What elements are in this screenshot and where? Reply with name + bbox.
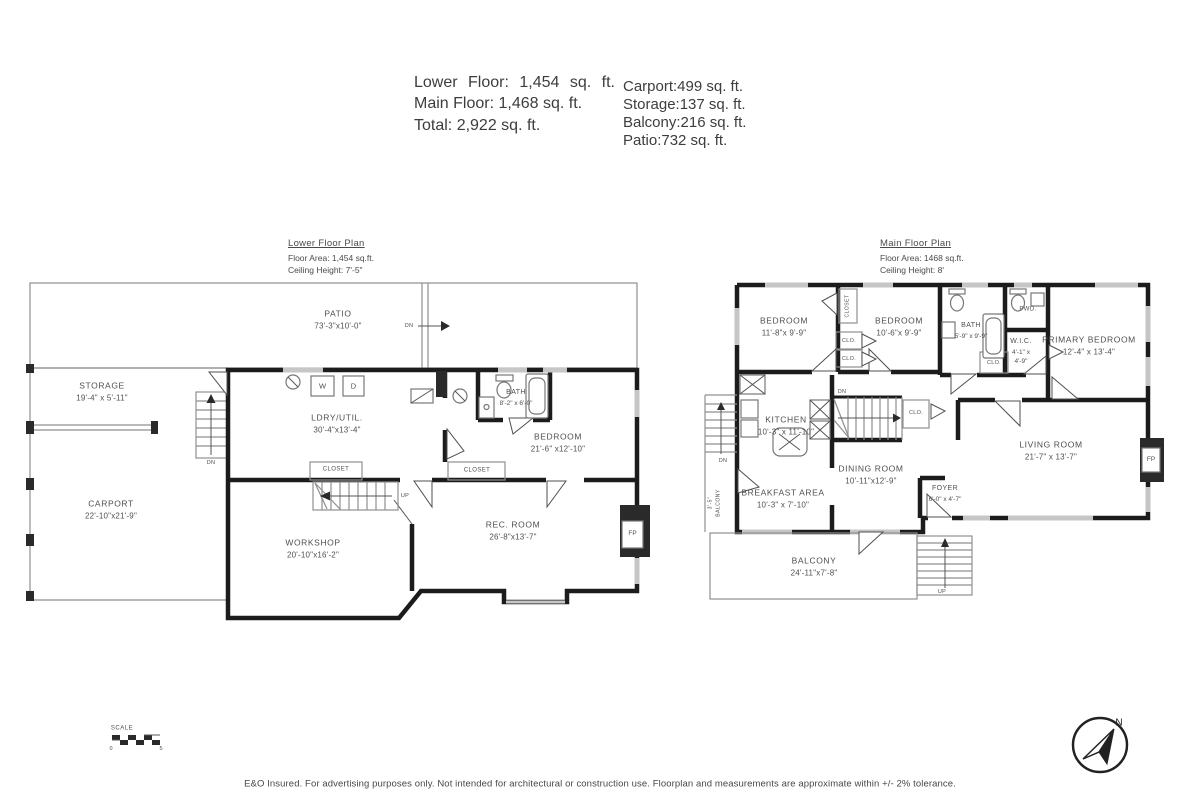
room-label-bedroom-2: BEDROOM 10'-6"x 9'-9" — [875, 315, 923, 340]
room-label-lower-bath: BATH 8'-2" x 6'-0" — [500, 388, 533, 408]
washer-icon: W — [319, 380, 326, 391]
main-plan-ceiling: Ceiling Height: 8' — [880, 264, 964, 276]
dryer-icon: D — [351, 380, 356, 391]
lower-windows — [283, 370, 637, 602]
carport-total: Carport:499 sq. ft. — [623, 78, 746, 96]
main-stairs-up-label: UP — [938, 588, 946, 596]
room-label-recroom: REC. ROOM 26'-8"x13'-7" — [486, 519, 541, 544]
lower-exterior-stairs — [196, 392, 227, 458]
storage-total: Storage:137 sq. ft. — [623, 96, 746, 114]
side-balcony-label: BALCONY — [715, 489, 723, 516]
main-stairs — [832, 397, 902, 440]
lower-carport-storage-outline — [26, 364, 230, 601]
closet-label-vertical: CLOSET — [844, 294, 852, 317]
main-fireplace-label: FP — [1147, 455, 1155, 465]
scale-label: SCALE — [111, 725, 133, 734]
patio-total: Patio:732 sq. ft. — [623, 132, 746, 150]
scale-bar-icon — [112, 735, 160, 745]
room-label-bedroom-1: BEDROOM 11'-8"x 9'-9" — [760, 315, 808, 340]
clo-label-stairs: CLO. — [909, 409, 923, 417]
room-label-lower-bedroom: BEDROOM 21'-6" x12'-10" — [531, 431, 585, 456]
room-label-main-balcony: BALCONY 24'-11"x7'-8" — [791, 555, 838, 580]
room-label-foyer: FOYER 6'-0" x 4'-7" — [929, 484, 962, 504]
lower-plan-title: Lower Floor Plan — [288, 238, 374, 249]
lower-plan-title-block: Lower Floor Plan Floor Area: 1,454 sq.ft… — [288, 238, 374, 277]
patio-dn-arrow — [441, 321, 450, 331]
main-plan-area: Floor Area: 1468 sq.ft. — [880, 252, 964, 264]
room-label-carport: CARPORT 22'-10"x21'-9" — [85, 498, 137, 523]
compass-north-label: N — [1115, 716, 1122, 731]
room-label-living: LIVING ROOM 21'-7" x 13'-7" — [1019, 439, 1082, 464]
side-balcony-dims: 3'-5" — [707, 497, 715, 509]
room-label-wic: W.I.C. 4'-1" x 4'-9" — [1010, 337, 1031, 367]
room-label-dining: DINING ROOM 10'-11"x12'-9" — [838, 463, 903, 488]
closet-label-2: CLOSET — [464, 467, 490, 476]
lower-interior-stairs — [313, 482, 398, 510]
lower-stairs-up-label: UP — [401, 492, 409, 500]
clo-label-bath: CLO. — [987, 359, 1001, 367]
area-summary-right: Carport:499 sq. ft. Storage:137 sq. ft. … — [623, 78, 746, 150]
room-label-main-bath: BATH 5'-9" x 9'-9" — [955, 321, 988, 341]
disclaimer-text: E&O Insured. For advertising purposes on… — [244, 779, 956, 790]
main-plan-title-block: Main Floor Plan Floor Area: 1468 sq.ft. … — [880, 238, 964, 277]
grand-total: Total: 2,922 sq. ft. — [414, 115, 615, 136]
room-label-kitchen: KITCHEN 10'-3" x 11'-10" — [758, 414, 814, 439]
main-floor-total: Main Floor: 1,468 sq. ft. — [414, 93, 615, 114]
side-stairs-dn-label: DN — [719, 457, 728, 465]
room-label-patio: PATIO 73'-3"x10'-0" — [314, 308, 361, 333]
area-summary-left: Lower Floor: 1,454 sq. ft. Main Floor: 1… — [414, 72, 615, 136]
scale-end: 5 — [159, 745, 162, 753]
room-label-laundry: LDRY/UTIL. 30'-4"x13'-4" — [311, 412, 363, 437]
main-stairs-dn-label: DN — [838, 388, 847, 396]
main-right-stairs — [917, 536, 972, 595]
room-label-workshop: WORKSHOP 20'-10"x16'-2" — [285, 537, 340, 562]
closet-label-1: CLOSET — [323, 466, 349, 475]
scale-start: 0 — [109, 745, 112, 753]
lower-plan-ceiling: Ceiling Height: 7'-5" — [288, 264, 374, 276]
main-plan-title: Main Floor Plan — [880, 238, 964, 249]
balcony-total: Balcony:216 sq. ft. — [623, 114, 746, 132]
clo-label-1: CLO. — [842, 337, 856, 345]
lower-fireplace-label: FP — [628, 529, 636, 539]
lower-floor-total: Lower Floor: 1,454 sq. ft. — [414, 72, 615, 93]
lower-stairs-dn-label: DN — [207, 459, 216, 467]
room-label-breakfast: BREAKFAST AREA 10'-3" x 7'-10" — [741, 487, 824, 512]
room-label-storage: STORAGE 19'-4" x 5'-11" — [76, 380, 128, 405]
clo-label-2: CLO. — [842, 355, 856, 363]
room-label-primary-bedroom: PRIMARY BEDROOM 12'-4" x 13'-4" — [1042, 334, 1136, 359]
powder-label: PWD. — [1019, 306, 1036, 315]
patio-dn-label: DN — [405, 322, 414, 330]
lower-plan-area: Floor Area: 1,454 sq.ft. — [288, 252, 374, 264]
